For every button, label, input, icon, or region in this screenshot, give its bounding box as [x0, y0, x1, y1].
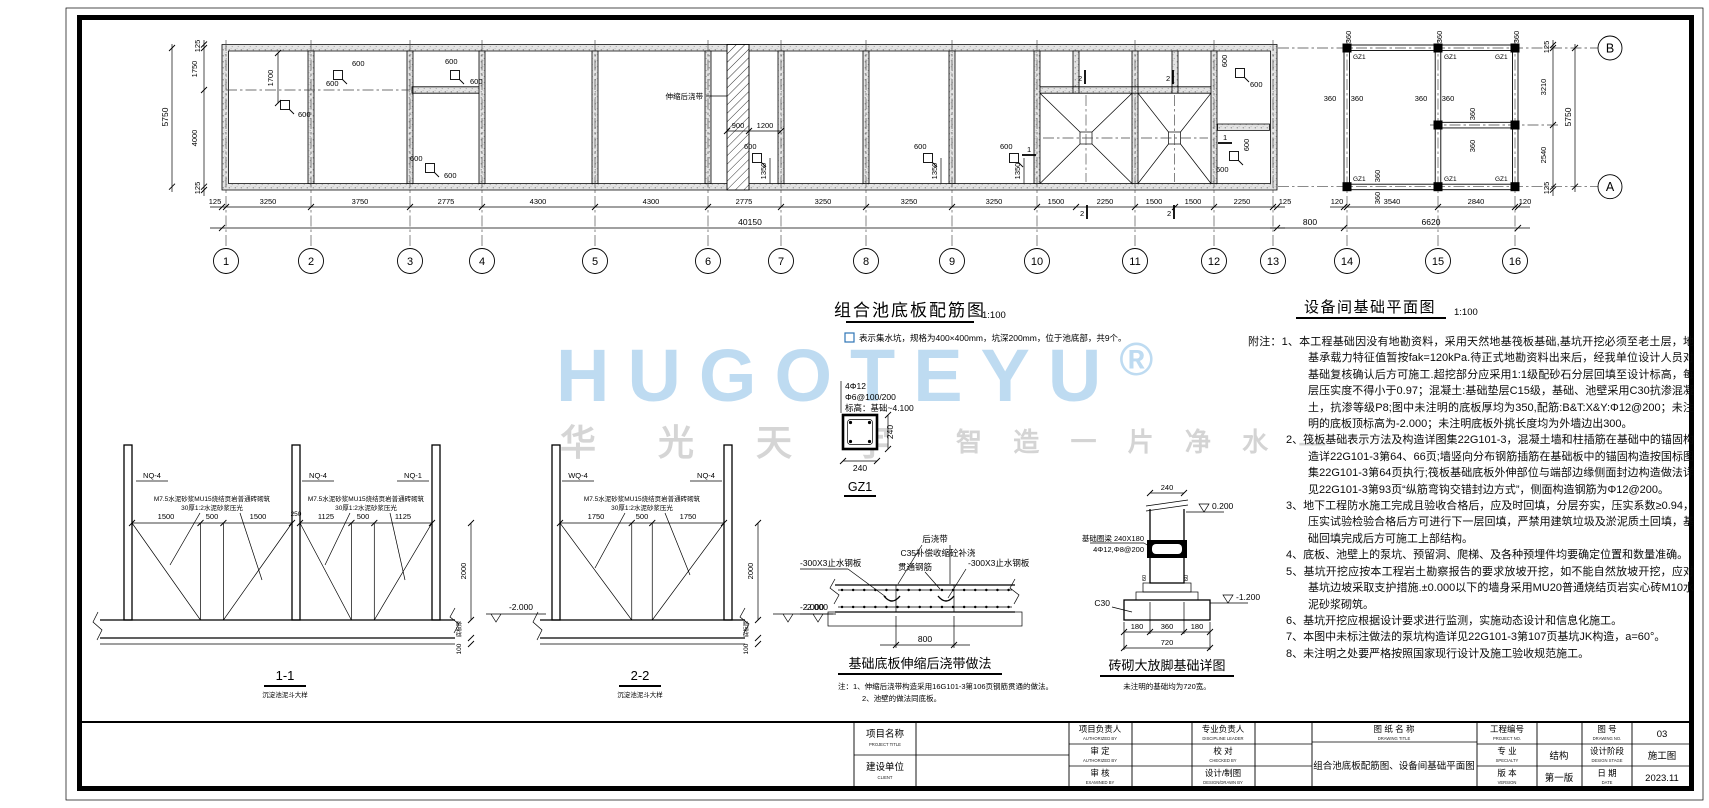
svg-text:A: A [1606, 180, 1615, 194]
svg-text:5750: 5750 [160, 107, 170, 126]
svg-text:M7.5水泥砂浆MU15烧结页岩普通砖砌筑: M7.5水泥砂浆MU15烧结页岩普通砖砌筑 [584, 494, 701, 503]
note-item: 3、地下工程防水施工完成且验收合格后，应及时回填，分层夯实，压实系数≥0.94，… [1248, 498, 1694, 547]
svg-text:1700: 1700 [266, 70, 275, 87]
section11-level-column: 2000 -2.000 底板厚 100 [450, 520, 546, 654]
svg-text:4300: 4300 [643, 197, 660, 206]
brick-dim-top: 240 [1161, 483, 1174, 492]
equip-walls [1344, 45, 1518, 190]
ring-beam-bars-label: 4Φ12,Φ8@200 [1093, 545, 1144, 554]
sump-legend-text: 表示集水坑，规格为400×400mm，坑深200mm，位于池底部，共9个。 [859, 333, 1127, 343]
svg-text:120: 120 [1331, 197, 1344, 206]
svg-text:500: 500 [357, 512, 370, 521]
tb-check-label: 校 对 [1213, 746, 1233, 756]
svg-text:2: 2 [1166, 74, 1170, 83]
pour-band-width: 800 [918, 634, 932, 644]
svg-text:3: 3 [407, 256, 413, 268]
svg-text:2000: 2000 [459, 563, 468, 580]
svg-text:GZ1: GZ1 [1353, 54, 1366, 61]
svg-text:NQ-4: NQ-4 [309, 471, 327, 480]
waterstop-label-left: -300X3止水钢板 [800, 558, 862, 568]
note-item: 5、基坑开挖应按本工程岩土勘察报告的要求放坡开挖，如不能自然放坡开挖，应对基坑边… [1248, 564, 1694, 613]
svg-text:2775: 2775 [736, 197, 753, 206]
waterstop-label-right: -300X3止水钢板 [968, 558, 1030, 568]
svg-text:2250: 2250 [1234, 197, 1251, 206]
tb-lead-label: 专业负责人 [1202, 724, 1245, 734]
gz1-stirrup-label: Φ6@100/200 [845, 392, 896, 402]
svg-text:3250: 3250 [901, 197, 918, 206]
tb-dwgname-value: 组合池底板配筋图、设备间基础平面图 [1313, 760, 1475, 772]
svg-text:1500: 1500 [250, 512, 267, 521]
svg-text:600: 600 [298, 110, 311, 119]
note-item: 8、未注明之处要严格按照国家现行设计及施工验收规范施工。 [1248, 646, 1694, 662]
svg-text:1125: 1125 [318, 512, 334, 521]
svg-text:250: 250 [291, 511, 302, 518]
section22-dimensions: 1750 500 1750 [557, 512, 727, 526]
gz1-column-detail: 4Φ12 Φ6@100/200 标高：基础~4.100 240 240 GZ1 [840, 381, 914, 496]
tb-project-label: 项目名称 [866, 728, 905, 740]
svg-text:12: 12 [1208, 256, 1220, 268]
svg-text:40150: 40150 [738, 217, 762, 227]
post-pour-band-detail: 后浇带 C35补偿收缩砼补浇 贯通钢筋 -300X3止水钢板 -300X3止水钢… [800, 534, 1053, 703]
section11-dimensions: 1500 500 1500 250 1125 500 1125 [129, 511, 435, 526]
svg-text:1750: 1750 [588, 512, 605, 521]
grid-bubbles: 1 2 3 4 5 6 7 8 9 10 11 12 13 14 15 16 [214, 249, 1528, 274]
section11-subtitle: 沉淀池泥斗大样 [262, 690, 308, 699]
pyramid-hopper-cells [1040, 93, 1211, 183]
gz1-columns [1343, 44, 1520, 192]
svg-text:EXAMINED BY: EXAMINED BY [1086, 780, 1115, 785]
svg-text:1125: 1125 [395, 512, 411, 521]
svg-text:1: 1 [1027, 145, 1031, 154]
section-2-2: WQ-4 NQ-4 1750 500 1750 M7.5水泥砂浆MU15烧结页岩… [533, 445, 833, 699]
svg-text:DESIGN/DRAWN BY: DESIGN/DRAWN BY [1203, 780, 1243, 785]
svg-text:DISCIPLINE LEADER: DISCIPLINE LEADER [1202, 736, 1243, 741]
svg-text:360: 360 [1351, 94, 1364, 103]
svg-text:60: 60 [1184, 575, 1190, 581]
svg-text:16: 16 [1509, 256, 1521, 268]
svg-text:2250: 2250 [1097, 197, 1114, 206]
svg-text:600: 600 [1000, 142, 1013, 151]
brick-footing-subtitle: 未注明的基础均为720宽。 [1123, 681, 1211, 691]
svg-text:VERSION: VERSION [1498, 780, 1517, 785]
gz1-column-labels: GZ1 GZ1 GZ1 GZ1 GZ1 GZ1 [1353, 54, 1508, 183]
section11-wall-labels: NQ-4 NQ-4 NQ-1 [136, 471, 429, 481]
svg-text:125: 125 [193, 182, 202, 195]
svg-text:AUTHORIZED BY: AUTHORIZED BY [1083, 758, 1117, 763]
svg-text:PROJECT TITLE: PROJECT TITLE [869, 742, 901, 747]
svg-text:15: 15 [1432, 256, 1444, 268]
svg-text:30厚1:2水泥砂浆压光: 30厚1:2水泥砂浆压光 [181, 503, 243, 512]
section22-subtitle: 沉淀池泥斗大样 [617, 690, 663, 699]
svg-text:1500: 1500 [1185, 197, 1202, 206]
brick-footing-detail: 240 基础圈梁 240X180 4Φ12,Φ8@200 C30 0.200 -… [1082, 483, 1260, 691]
svg-text:PROJECT NO.: PROJECT NO. [1493, 736, 1521, 741]
svg-text:1500: 1500 [1146, 197, 1163, 206]
svg-text:GZ1: GZ1 [1495, 176, 1508, 183]
svg-text:900: 900 [732, 121, 745, 130]
svg-text:600: 600 [326, 79, 339, 88]
svg-text:B: B [1606, 42, 1614, 56]
svg-text:2540: 2540 [1539, 147, 1548, 164]
tb-date-value: 2023.11 [1645, 773, 1679, 784]
svg-text:2000: 2000 [746, 563, 755, 580]
svg-text:60: 60 [1142, 575, 1148, 581]
svg-text:2: 2 [308, 256, 314, 268]
svg-text:7: 7 [778, 256, 784, 268]
note-item: 4、底板、池壁上的泵坑、预留洞、爬梯、及各种预埋件均要确定位置和数量准确。 [1248, 547, 1694, 563]
svg-text:2: 2 [1080, 209, 1084, 218]
tb-stage-label: 设计阶段 [1590, 746, 1625, 756]
gz1-bars-label: 4Φ12 [845, 381, 866, 391]
svg-text:DESIGN STAGE: DESIGN STAGE [1591, 758, 1622, 763]
svg-text:AUTHORIZED BY: AUTHORIZED BY [1083, 736, 1117, 741]
pour-band-title: 基础底板伸缩后浇带做法 [848, 656, 991, 671]
svg-text:600: 600 [410, 154, 423, 163]
section22-brick-notes: M7.5水泥砂浆MU15烧结页岩普通砖砌筑 30厚1:2水泥砂浆压光 [584, 494, 701, 575]
brick-total-dim: 720 [1161, 638, 1174, 647]
svg-text:6620: 6620 [1422, 217, 1441, 227]
svg-text:M7.5水泥砂浆MU15烧结页岩普通砖砌筑: M7.5水泥砂浆MU15烧结页岩普通砖砌筑 [154, 494, 271, 503]
svg-text:125: 125 [1542, 41, 1551, 54]
pour-band-note2: 2、池壁的做法同底板。 [862, 693, 941, 703]
svg-text:360: 360 [1161, 622, 1174, 631]
svg-text:9: 9 [949, 256, 955, 268]
svg-text:4: 4 [479, 256, 485, 268]
tb-figno-label: 图 号 [1597, 724, 1616, 734]
svg-text:NQ-4: NQ-4 [697, 471, 715, 480]
note-item: 6、基坑开挖应根据设计要求进行监测，实施动态设计和信息化施工。 [1248, 613, 1694, 629]
svg-text:DRAWING TITLE: DRAWING TITLE [1378, 736, 1411, 741]
svg-text:3750: 3750 [352, 197, 369, 206]
notes-title: 附注： [1248, 336, 1282, 348]
svg-text:11: 11 [1129, 256, 1140, 268]
svg-text:NQ-4: NQ-4 [143, 471, 161, 480]
svg-text:2840: 2840 [1468, 197, 1485, 206]
svg-text:DATE: DATE [1602, 780, 1613, 785]
brick-footing-title: 砖砌大放脚基础详图 [1108, 658, 1225, 673]
pool-bottom-slab-plan: 伸缩后浇带 [160, 40, 1598, 343]
pour-band-note1: 注：1、伸缩后浇带构造采用16G101-3第106页钢筋贯通的做法。 [838, 681, 1053, 691]
svg-text:10: 10 [1031, 256, 1043, 268]
svg-text:600: 600 [744, 142, 757, 151]
pool-bottom-dimensions: 125 3250 3750 2775 4300 4300 2775 3250 3… [209, 197, 1292, 231]
svg-text:600: 600 [1250, 80, 1263, 89]
svg-text:3250: 3250 [986, 197, 1003, 206]
pool-left-dimensions: 125 1750 4000 125 5750 [160, 40, 207, 196]
svg-text:100: 100 [743, 643, 750, 654]
tb-projno-label: 工程编号 [1490, 724, 1524, 734]
tb-date-label: 日 期 [1597, 768, 1616, 778]
tb-dwgname-label: 图 纸 名 称 [1373, 724, 1415, 734]
svg-text:1200: 1200 [757, 121, 774, 130]
svg-text:360: 360 [1415, 94, 1428, 103]
svg-text:360: 360 [1468, 108, 1477, 121]
drawing-sheet: HUGOTEYU® 华 光 天 宇智 造 一 片 净 水 — [0, 0, 1709, 808]
pool-outer-wall [222, 45, 1277, 191]
svg-text:1: 1 [223, 256, 229, 268]
note-item: 2、筏板基础表示方法及构造详图集22G101-3，混凝土墙和柱插筋在基础中的锚固… [1248, 432, 1694, 498]
svg-text:-2.000: -2.000 [509, 602, 533, 612]
section22-level-column: 2000 -2.000 底板厚 100 [740, 520, 833, 654]
svg-text:360: 360 [1373, 170, 1382, 183]
svg-text:600: 600 [914, 142, 927, 151]
svg-text:3540: 3540 [1384, 197, 1401, 206]
svg-text:600: 600 [1242, 139, 1251, 152]
svg-text:360: 360 [1344, 31, 1353, 44]
svg-text:600: 600 [445, 57, 458, 66]
tb-stage-value: 施工图 [1648, 750, 1677, 762]
svg-text:600: 600 [352, 59, 365, 68]
svg-text:125: 125 [1542, 182, 1551, 195]
svg-text:30厚1:2水泥砂浆压光: 30厚1:2水泥砂浆压光 [611, 503, 673, 512]
svg-text:1: 1 [1223, 133, 1227, 142]
svg-text:500: 500 [206, 512, 219, 521]
svg-text:125: 125 [193, 40, 202, 53]
equip-bottom-dimensions: 120 3540 2840 120 800 6620 [1270, 197, 1531, 231]
svg-text:360: 360 [1435, 31, 1444, 44]
svg-text:360: 360 [1324, 94, 1337, 103]
general-notes: 附注：1、本工程基础因没有地勘资料，采用天然地基筏板基础,基坑开挖必须至老土层，… [1248, 334, 1694, 662]
tb-ver-label: 版 本 [1497, 768, 1517, 778]
tb-client-label: 建设单位 [866, 761, 905, 773]
svg-text:600: 600 [444, 171, 457, 180]
svg-text:1750: 1750 [680, 512, 697, 521]
post-pour-band [727, 45, 749, 191]
svg-text:GZ1: GZ1 [1444, 54, 1457, 61]
level-top-label: 0.200 [1212, 501, 1234, 511]
svg-text:6: 6 [705, 256, 711, 268]
equip-plan-scale: 1:100 [1454, 307, 1478, 318]
svg-text:4300: 4300 [530, 197, 547, 206]
svg-text:2: 2 [1078, 74, 1082, 83]
svg-text:NQ-1: NQ-1 [404, 471, 422, 480]
title-block: 项目名称 PROJECT TITLE 建设单位 CLIENT 项目负责人 AUT… [80, 722, 1692, 788]
svg-text:100: 100 [456, 643, 463, 654]
svg-text:600: 600 [1220, 55, 1229, 68]
svg-text:3250: 3250 [260, 197, 277, 206]
note-item: 7、本图中未标注做法的泵坑构造详见22G101-3第107页基坑JK构造，a=6… [1248, 629, 1694, 645]
footing-concrete-label: C30 [1094, 598, 1110, 608]
gz1-elevation-label: 标高：基础~4.100 [845, 403, 914, 413]
svg-text:CLIENT: CLIENT [878, 775, 893, 780]
post-pour-band-label: 伸缩后浇带 [666, 91, 704, 101]
tb-examine-label: 审 核 [1090, 768, 1110, 778]
svg-text:4000: 4000 [190, 130, 199, 147]
svg-text:1500: 1500 [158, 512, 175, 521]
section22-title: 2-2 [631, 668, 650, 683]
note-item: 附注：1、本工程基础因没有地勘资料，采用天然地基筏板基础,基坑开挖必须至老土层，… [1248, 334, 1694, 432]
pool-plan-title: 组合池底板配筋图 [834, 301, 986, 320]
svg-text:240: 240 [885, 425, 895, 439]
pool-plan-scale: 1:100 [982, 310, 1006, 321]
svg-text:500: 500 [636, 512, 649, 521]
svg-text:1350: 1350 [1013, 163, 1022, 180]
tb-spec-label: 专 业 [1497, 746, 1516, 756]
svg-text:GZ1: GZ1 [1444, 176, 1457, 183]
tb-figno-value: 03 [1657, 729, 1668, 740]
grid-axes [226, 40, 1598, 249]
svg-text:240: 240 [853, 463, 867, 473]
svg-text:600: 600 [1216, 165, 1229, 174]
svg-text:5: 5 [592, 256, 598, 268]
svg-text:3250: 3250 [815, 197, 832, 206]
svg-text:13: 13 [1267, 256, 1279, 268]
tb-ver-value: 第一版 [1545, 772, 1574, 784]
svg-text:1350: 1350 [759, 163, 768, 180]
ring-beam-label: 基础圈梁 240X180 [1082, 533, 1144, 543]
svg-text:800: 800 [1303, 217, 1317, 227]
svg-text:360: 360 [1468, 140, 1477, 153]
equip-right-dimensions: 125 3210 2540 125 5750 [1539, 40, 1578, 196]
svg-text:30厚1:2水泥砂浆压光: 30厚1:2水泥砂浆压光 [335, 503, 397, 512]
svg-text:3210: 3210 [1539, 79, 1548, 96]
svg-text:2775: 2775 [438, 197, 455, 206]
svg-text:5750: 5750 [1563, 107, 1573, 126]
pour-band-concrete-label: C35补偿收缩砼补浇 [900, 548, 976, 558]
equipment-room-foundation-plan: GZ1 GZ1 GZ1 GZ1 GZ1 GZ1 360 360 360 360 … [1270, 31, 1622, 318]
svg-text:GZ1: GZ1 [1353, 176, 1366, 183]
svg-text:120: 120 [1519, 197, 1532, 206]
pool-detail-dims: 600 600 600 600 600 600 600 600 600 600 … [266, 50, 1263, 184]
svg-text:180: 180 [1191, 622, 1204, 631]
svg-text:DRAWING NO.: DRAWING NO. [1593, 736, 1622, 741]
tb-pm-label: 项目负责人 [1079, 724, 1122, 734]
section11-brick-notes: M7.5水泥砂浆MU15烧结页岩普通砖砌筑 30厚1:2水泥砂浆压光 M7.5水… [154, 494, 425, 580]
svg-text:14: 14 [1341, 256, 1353, 268]
svg-text:SPECIALTY: SPECIALTY [1496, 758, 1519, 763]
sump-legend-icon [845, 333, 854, 342]
svg-text:1750: 1750 [190, 61, 199, 78]
svg-text:GZ1: GZ1 [1495, 54, 1508, 61]
equip-plan-title: 设备间基础平面图 [1304, 299, 1436, 316]
svg-text:125: 125 [209, 197, 222, 206]
svg-text:CHECKED BY: CHECKED BY [1209, 758, 1236, 763]
svg-text:360: 360 [1512, 31, 1521, 44]
svg-text:1350: 1350 [930, 163, 939, 180]
section11-title: 1-1 [276, 668, 295, 683]
svg-text:1500: 1500 [1048, 197, 1065, 206]
svg-text:360: 360 [1442, 94, 1455, 103]
tb-approve-label: 审 定 [1090, 746, 1110, 756]
section22-wall-labels: WQ-4 NQ-4 [562, 471, 722, 481]
pour-band-label: 后浇带 [922, 534, 948, 544]
svg-text:8: 8 [863, 256, 869, 268]
tb-design-label: 设计/制图 [1205, 768, 1241, 778]
svg-text:360: 360 [1373, 192, 1382, 205]
pour-band-level: -2.000 [804, 602, 828, 612]
svg-text:180: 180 [1131, 622, 1144, 631]
svg-text:M7.5水泥砂浆MU15烧结页岩普通砖砌筑: M7.5水泥砂浆MU15烧结页岩普通砖砌筑 [308, 494, 425, 503]
svg-text:2: 2 [1167, 209, 1171, 218]
tb-spec-value: 结构 [1549, 750, 1568, 762]
svg-text:125: 125 [1279, 197, 1292, 206]
section-1-1: NQ-4 NQ-4 NQ-1 1500 500 1500 250 1125 50… [93, 445, 546, 699]
svg-text:600: 600 [470, 77, 483, 86]
svg-text:WQ-4: WQ-4 [568, 471, 588, 480]
pour-band-rebar-label: 贯通钢筋 [898, 562, 932, 572]
gz1-title: GZ1 [848, 480, 872, 494]
axis-bubbles-ab: B A [1598, 36, 1622, 199]
